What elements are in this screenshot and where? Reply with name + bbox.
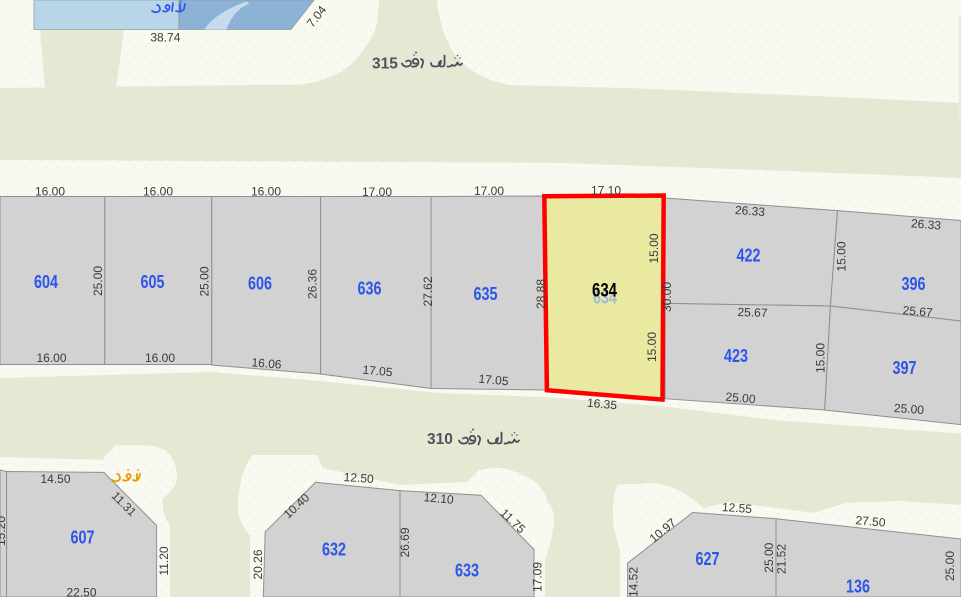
svg-text:22.50: 22.50 xyxy=(66,586,96,597)
svg-text:15.00: 15.00 xyxy=(835,241,849,271)
svg-text:607: 607 xyxy=(71,527,95,548)
svg-text:25.00: 25.00 xyxy=(91,266,105,296)
svg-text:26.36: 26.36 xyxy=(306,269,320,299)
svg-text:27.62: 27.62 xyxy=(421,276,435,306)
svg-text:16.00: 16.00 xyxy=(143,185,173,199)
svg-text:310: 310 xyxy=(427,431,453,448)
svg-text:634: 634 xyxy=(592,281,617,302)
svg-text:14.50: 14.50 xyxy=(40,472,70,486)
svg-text:26.33: 26.33 xyxy=(735,203,766,219)
svg-text:17.00: 17.00 xyxy=(362,185,392,199)
svg-text:11.20: 11.20 xyxy=(157,546,171,575)
svg-text:27.50: 27.50 xyxy=(855,513,886,530)
svg-text:635: 635 xyxy=(474,283,498,304)
svg-text:12.55: 12.55 xyxy=(722,500,753,516)
svg-text:16.00: 16.00 xyxy=(145,351,175,365)
svg-text:25.00: 25.00 xyxy=(894,401,925,417)
svg-text:26.33: 26.33 xyxy=(910,216,941,232)
svg-text:28.88: 28.88 xyxy=(534,279,548,309)
svg-text:20.26: 20.26 xyxy=(251,549,265,579)
svg-text:17.05: 17.05 xyxy=(362,363,393,380)
svg-text:606: 606 xyxy=(248,273,272,294)
svg-text:26.69: 26.69 xyxy=(398,527,412,557)
svg-text:636: 636 xyxy=(358,278,382,299)
svg-text:30.00: 30.00 xyxy=(660,282,674,312)
svg-text:627: 627 xyxy=(696,548,720,569)
svg-text:21.52: 21.52 xyxy=(775,544,789,574)
svg-text:16.00: 16.00 xyxy=(36,351,66,365)
svg-text:17.05: 17.05 xyxy=(478,372,509,389)
svg-text:16.35: 16.35 xyxy=(586,396,617,413)
svg-text:16.06: 16.06 xyxy=(251,355,282,371)
svg-text:632: 632 xyxy=(322,539,346,560)
svg-text:17.09: 17.09 xyxy=(531,562,545,592)
svg-text:423: 423 xyxy=(724,345,748,366)
svg-text:17.00: 17.00 xyxy=(474,184,504,198)
svg-text:25.67: 25.67 xyxy=(737,305,768,320)
svg-text:422: 422 xyxy=(737,245,761,266)
svg-text:397: 397 xyxy=(893,357,917,378)
svg-text:15.00: 15.00 xyxy=(645,332,659,362)
svg-text:15.20: 15.20 xyxy=(0,516,8,546)
svg-text:604: 604 xyxy=(34,271,59,292)
svg-text:15.00: 15.00 xyxy=(814,343,828,373)
svg-text:605: 605 xyxy=(141,271,165,292)
svg-text:17.10: 17.10 xyxy=(591,184,621,198)
svg-text:16.00: 16.00 xyxy=(35,185,65,199)
svg-text:38.74: 38.74 xyxy=(150,31,180,45)
svg-text:25.00: 25.00 xyxy=(943,551,957,581)
svg-text:25.67: 25.67 xyxy=(902,303,933,320)
svg-text:12.50: 12.50 xyxy=(343,470,374,486)
svg-text:16.00: 16.00 xyxy=(251,185,281,199)
svg-text:633: 633 xyxy=(455,560,479,581)
svg-text:25.00: 25.00 xyxy=(198,266,212,296)
svg-text:12.10: 12.10 xyxy=(423,490,454,507)
svg-text:25.00: 25.00 xyxy=(725,390,756,407)
svg-text:396: 396 xyxy=(902,273,926,294)
svg-text:136: 136 xyxy=(846,576,870,597)
svg-text:15.00: 15.00 xyxy=(647,233,661,263)
svg-text:14.52: 14.52 xyxy=(627,567,641,597)
svg-text:315: 315 xyxy=(372,56,398,73)
